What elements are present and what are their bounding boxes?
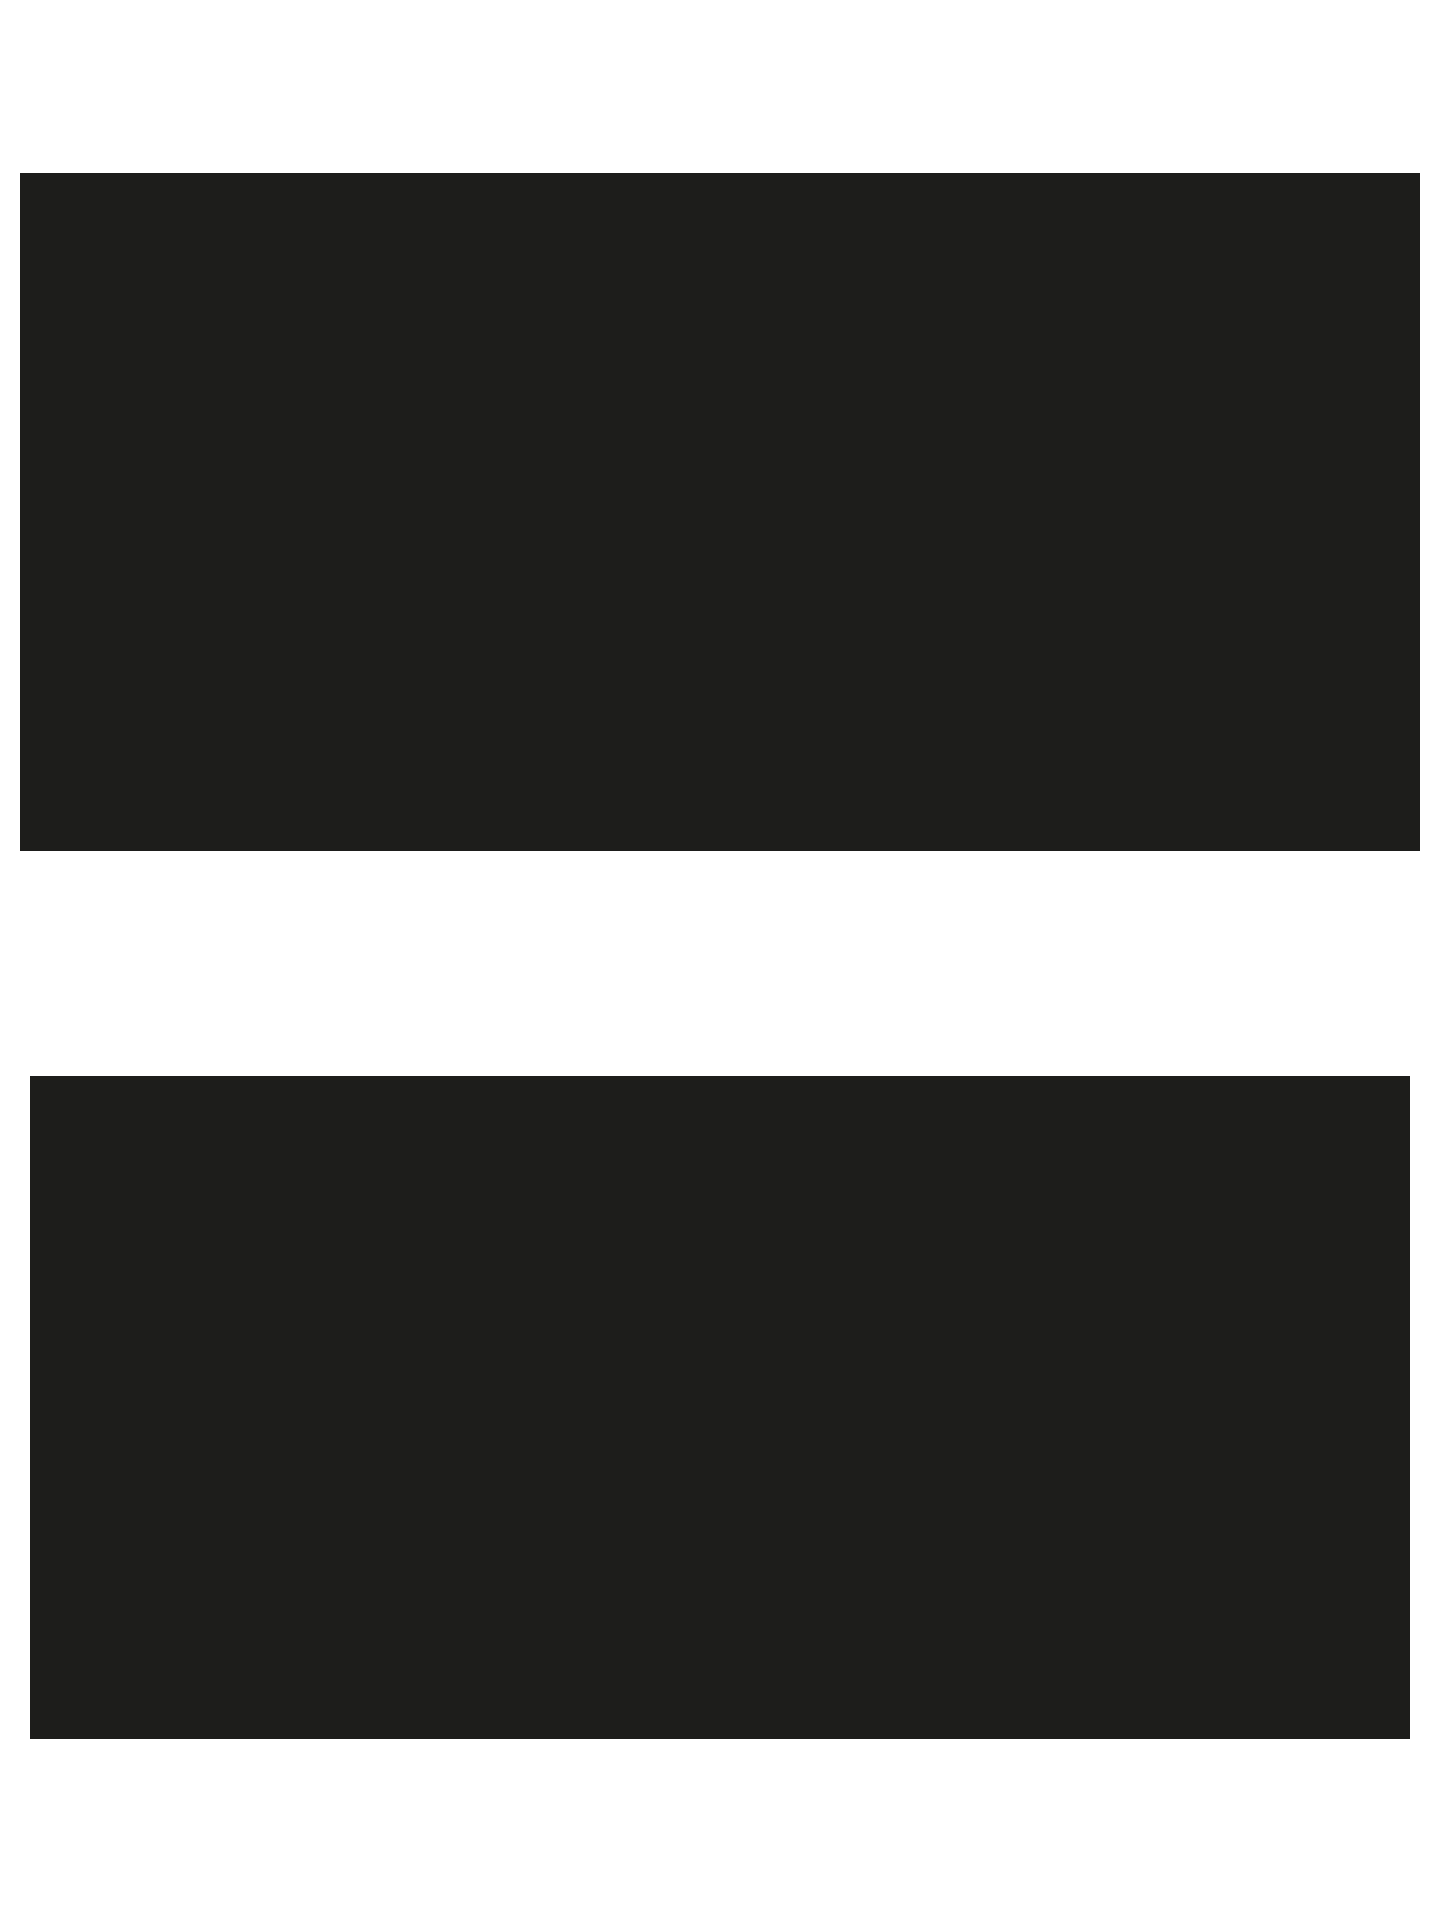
dark-panel-bottom bbox=[30, 1076, 1410, 1739]
dark-panel-top bbox=[20, 173, 1420, 851]
page-background bbox=[0, 0, 1440, 1920]
